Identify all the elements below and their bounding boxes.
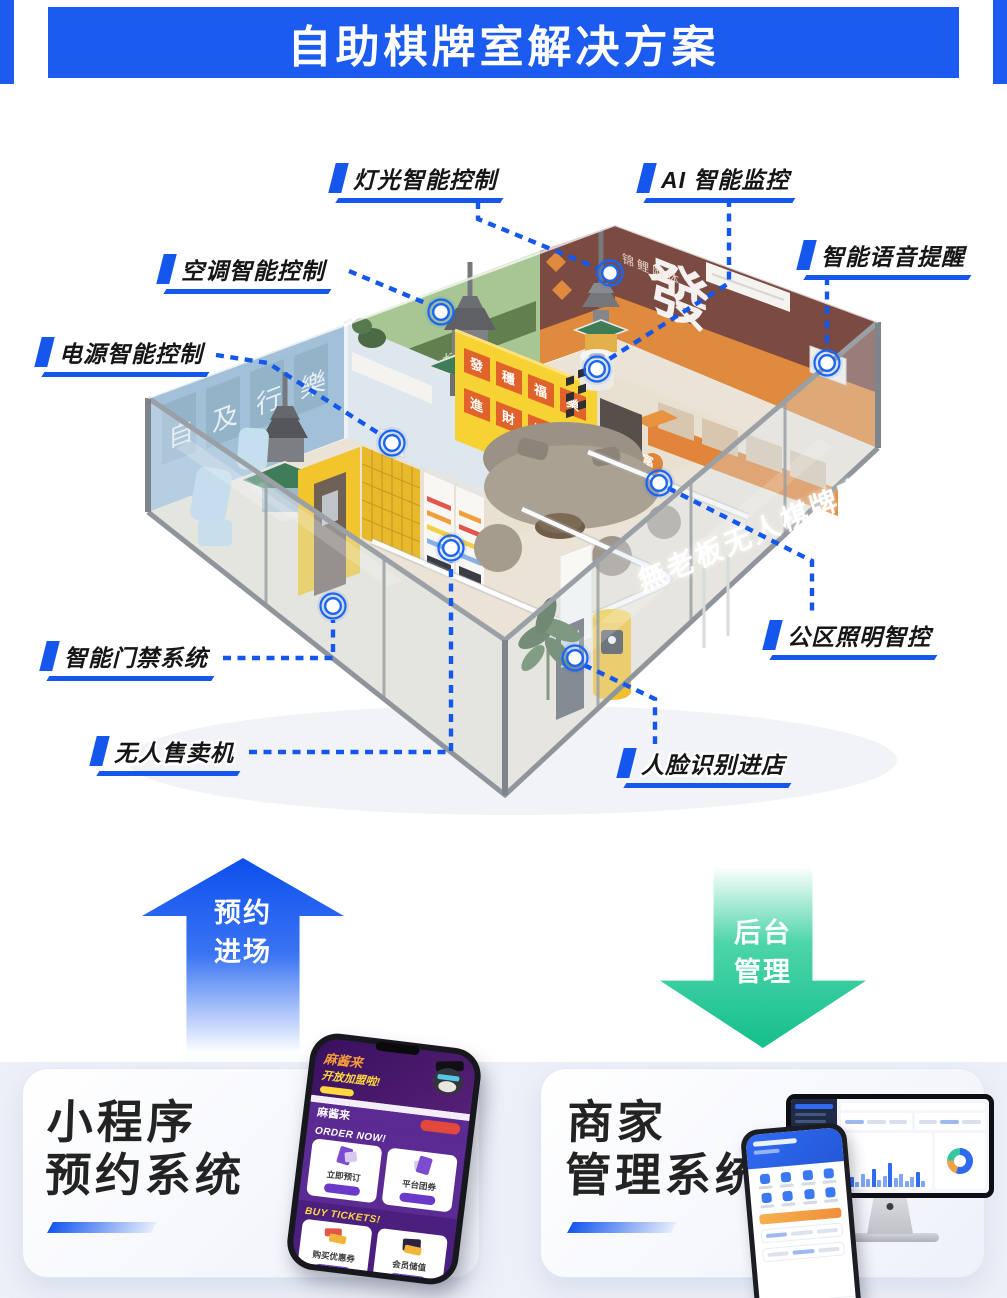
callout-label: 公区照明智控	[787, 618, 931, 652]
callout-voice: 智能语音提醒	[800, 238, 965, 272]
phone-screen: 麻酱来 开放加盟啦! 麻酱来 ORDER NOW!	[291, 1037, 477, 1281]
left-edge-decor-bar	[0, 0, 14, 84]
callout-label: 智能语音提醒	[821, 238, 965, 272]
marker-voice	[811, 347, 843, 379]
isometric-room-illustration: 自 及 行 樂 吃摸碰杠 發 锦鲤附体	[0, 130, 1007, 830]
callout-label: 电源智能控制	[59, 335, 203, 369]
callout-label: 智能门禁系统	[64, 639, 208, 673]
right-edge-decor-bar	[993, 0, 1007, 84]
marker-vending	[435, 532, 467, 564]
dashboard-main	[837, 1099, 989, 1193]
app-card-coupon-platform: 平台团券	[381, 1147, 457, 1212]
marker-ai-camera	[581, 353, 613, 385]
callout-ai-monitor: AI 智能监控	[640, 161, 789, 195]
marker-light	[594, 257, 626, 289]
card-cta-pill	[399, 1192, 436, 1205]
label-accent-bar	[89, 736, 109, 766]
phone-screen	[745, 1127, 857, 1298]
notice-pill	[420, 1119, 461, 1135]
reserve-entry-arrow: 预约 进场	[142, 858, 344, 1058]
title-banner: 自助棋牌室解决方案	[48, 7, 959, 78]
apple-logo-icon	[887, 1203, 894, 1210]
merchant-phone-mockup	[740, 1122, 863, 1298]
phone-frame	[740, 1122, 863, 1298]
marker-power	[376, 427, 408, 459]
imac-stand	[867, 1198, 913, 1234]
callout-label: AI 智能监控	[661, 161, 789, 195]
label-accent-bar	[34, 337, 54, 367]
label-accent-bar	[328, 163, 348, 193]
admin-stat-row	[760, 1222, 843, 1243]
marker-face-entry	[559, 642, 591, 674]
callout-label: 灯光智能控制	[353, 161, 497, 195]
stat-card	[915, 1113, 986, 1130]
callout-face-entry: 人脸识别进店	[620, 746, 785, 780]
title-underline-bar	[47, 1222, 157, 1233]
marker-public-light	[643, 467, 675, 499]
label-accent-bar	[616, 748, 636, 778]
label-accent-bar	[156, 254, 176, 284]
callout-vending: 无人售卖机	[93, 734, 234, 768]
callout-label: 空调智能控制	[181, 252, 325, 286]
title-underline-bar	[567, 1222, 677, 1233]
marker-door-access	[317, 590, 349, 622]
callout-power: 电源智能控制	[38, 335, 203, 369]
bar-chart	[841, 1133, 932, 1189]
merchant-title: 商家 管理系统	[564, 1096, 768, 1203]
stat-card	[841, 1113, 912, 1130]
backend-admin-arrow: 后台 管理	[660, 866, 866, 1048]
callout-door-access: 智能门禁系统	[43, 639, 208, 673]
donut-chart	[935, 1133, 985, 1189]
label-accent-bar	[39, 641, 59, 671]
callout-aircon: 空调智能控制	[160, 252, 325, 286]
page-title: 自助棋牌室解决方案	[288, 11, 720, 75]
label-accent-bar	[796, 240, 816, 270]
label-accent-bar	[762, 620, 782, 650]
label-accent-bar	[636, 163, 656, 193]
miniprogram-phone-mockup: 麻酱来 开放加盟啦! 麻酱来 ORDER NOW!	[284, 1030, 484, 1287]
admin-arrow-text: 后台 管理	[660, 914, 866, 992]
poster-page: 自助棋牌室解决方案 自 及 行 樂 吃摸碰杠	[0, 0, 1007, 1298]
callout-label: 无人售卖机	[114, 734, 234, 768]
marker-aircon	[425, 296, 457, 328]
app-card-book: 立即预订	[306, 1138, 382, 1203]
admin-stat-row	[762, 1241, 845, 1262]
callout-label: 人脸识别进店	[641, 746, 785, 780]
app-card-member-stored-value: 会员储值	[372, 1228, 448, 1281]
phone-frame: 麻酱来 开放加盟啦! 麻酱来 ORDER NOW!	[284, 1030, 484, 1287]
reserve-arrow-text: 预约 进场	[142, 894, 344, 972]
card-cta-pill	[324, 1183, 361, 1196]
card-cta-pill	[389, 1273, 426, 1281]
callout-public-light: 公区照明智控	[766, 618, 931, 652]
cat-mascot-icon	[428, 1059, 469, 1103]
miniprogram-title: 小程序 预约系统	[44, 1096, 248, 1203]
promo-pill	[320, 1086, 355, 1097]
dashboard-topbar	[841, 1103, 985, 1110]
callout-light: 灯光智能控制	[332, 161, 497, 195]
